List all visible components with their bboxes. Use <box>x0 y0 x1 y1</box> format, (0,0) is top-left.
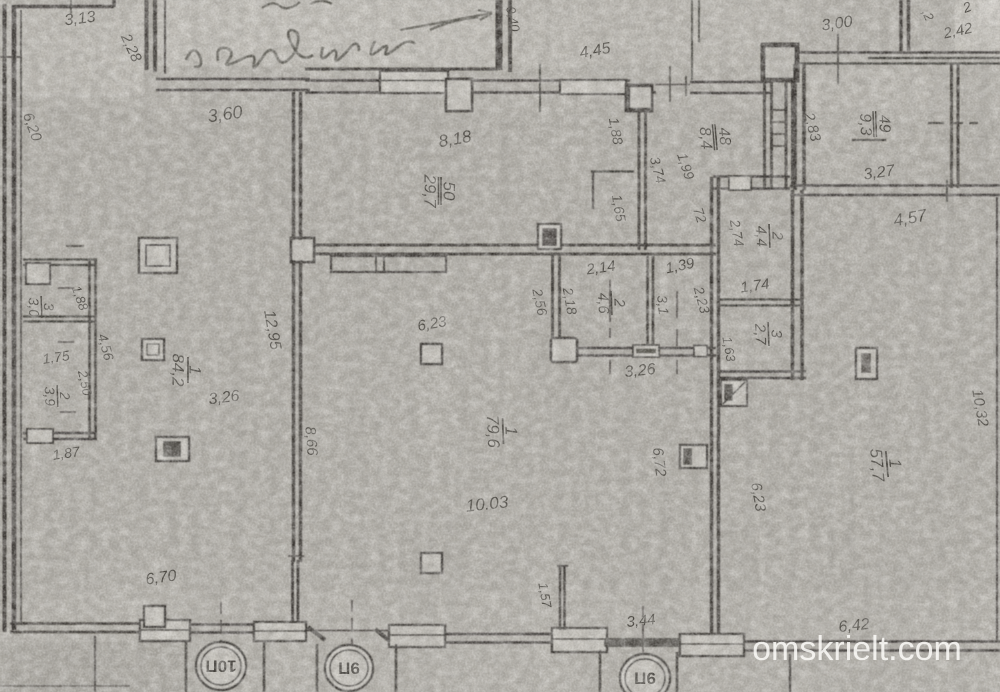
svg-text:omskrielt.com: omskrielt.com <box>752 630 962 668</box>
